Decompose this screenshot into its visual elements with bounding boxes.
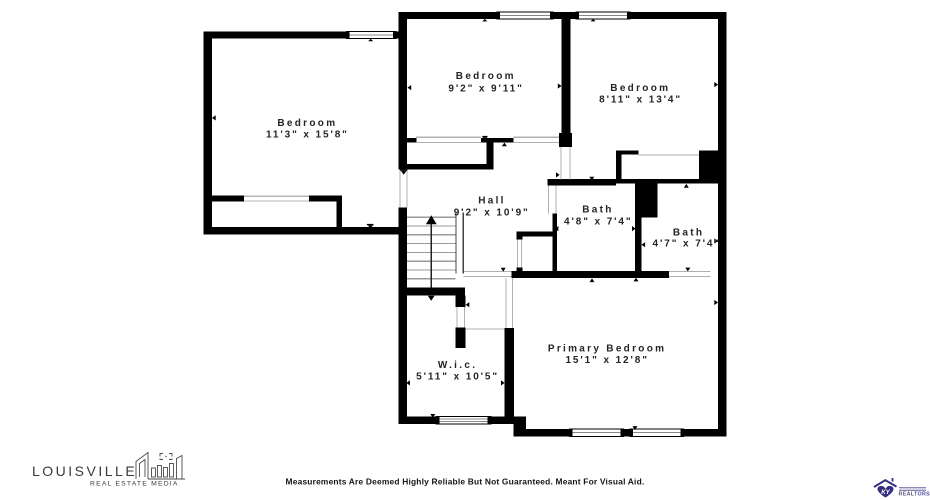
svg-text:Bath: Bath xyxy=(582,204,613,215)
svg-text:Bath: Bath xyxy=(673,227,704,238)
svg-text:5'11" x 10'5": 5'11" x 10'5" xyxy=(416,372,499,383)
svg-text:Measurements Are Deemed Highly: Measurements Are Deemed Highly Reliable … xyxy=(286,476,645,486)
svg-text:Primary Bedroom: Primary Bedroom xyxy=(548,344,666,355)
svg-text:8'11" x 13'4": 8'11" x 13'4" xyxy=(599,94,682,105)
svg-text:Bedroom: Bedroom xyxy=(277,118,337,129)
svg-text:Bedroom: Bedroom xyxy=(456,71,516,82)
svg-text:Hall: Hall xyxy=(478,196,506,207)
svg-text:9'2" x 10'9": 9'2" x 10'9" xyxy=(454,207,530,218)
svg-text:LOUISVILLE: LOUISVILLE xyxy=(32,463,137,479)
svg-text:15'1" x 12'8": 15'1" x 12'8" xyxy=(565,355,648,366)
svg-text:W.i.c.: W.i.c. xyxy=(438,360,477,371)
svg-text:4'8" x 7'4": 4'8" x 7'4" xyxy=(564,216,633,227)
svg-text:KY: KY xyxy=(881,489,890,496)
svg-text:4'7" x 7'4": 4'7" x 7'4" xyxy=(653,239,722,250)
svg-text:REAL ESTATE MEDIA: REAL ESTATE MEDIA xyxy=(90,481,179,488)
svg-text:9'2" x 9'11": 9'2" x 9'11" xyxy=(448,83,523,94)
svg-text:REALTORS: REALTORS xyxy=(899,492,930,498)
svg-text:Bedroom: Bedroom xyxy=(610,83,670,94)
svg-text:11'3" x 15'8": 11'3" x 15'8" xyxy=(266,129,349,140)
